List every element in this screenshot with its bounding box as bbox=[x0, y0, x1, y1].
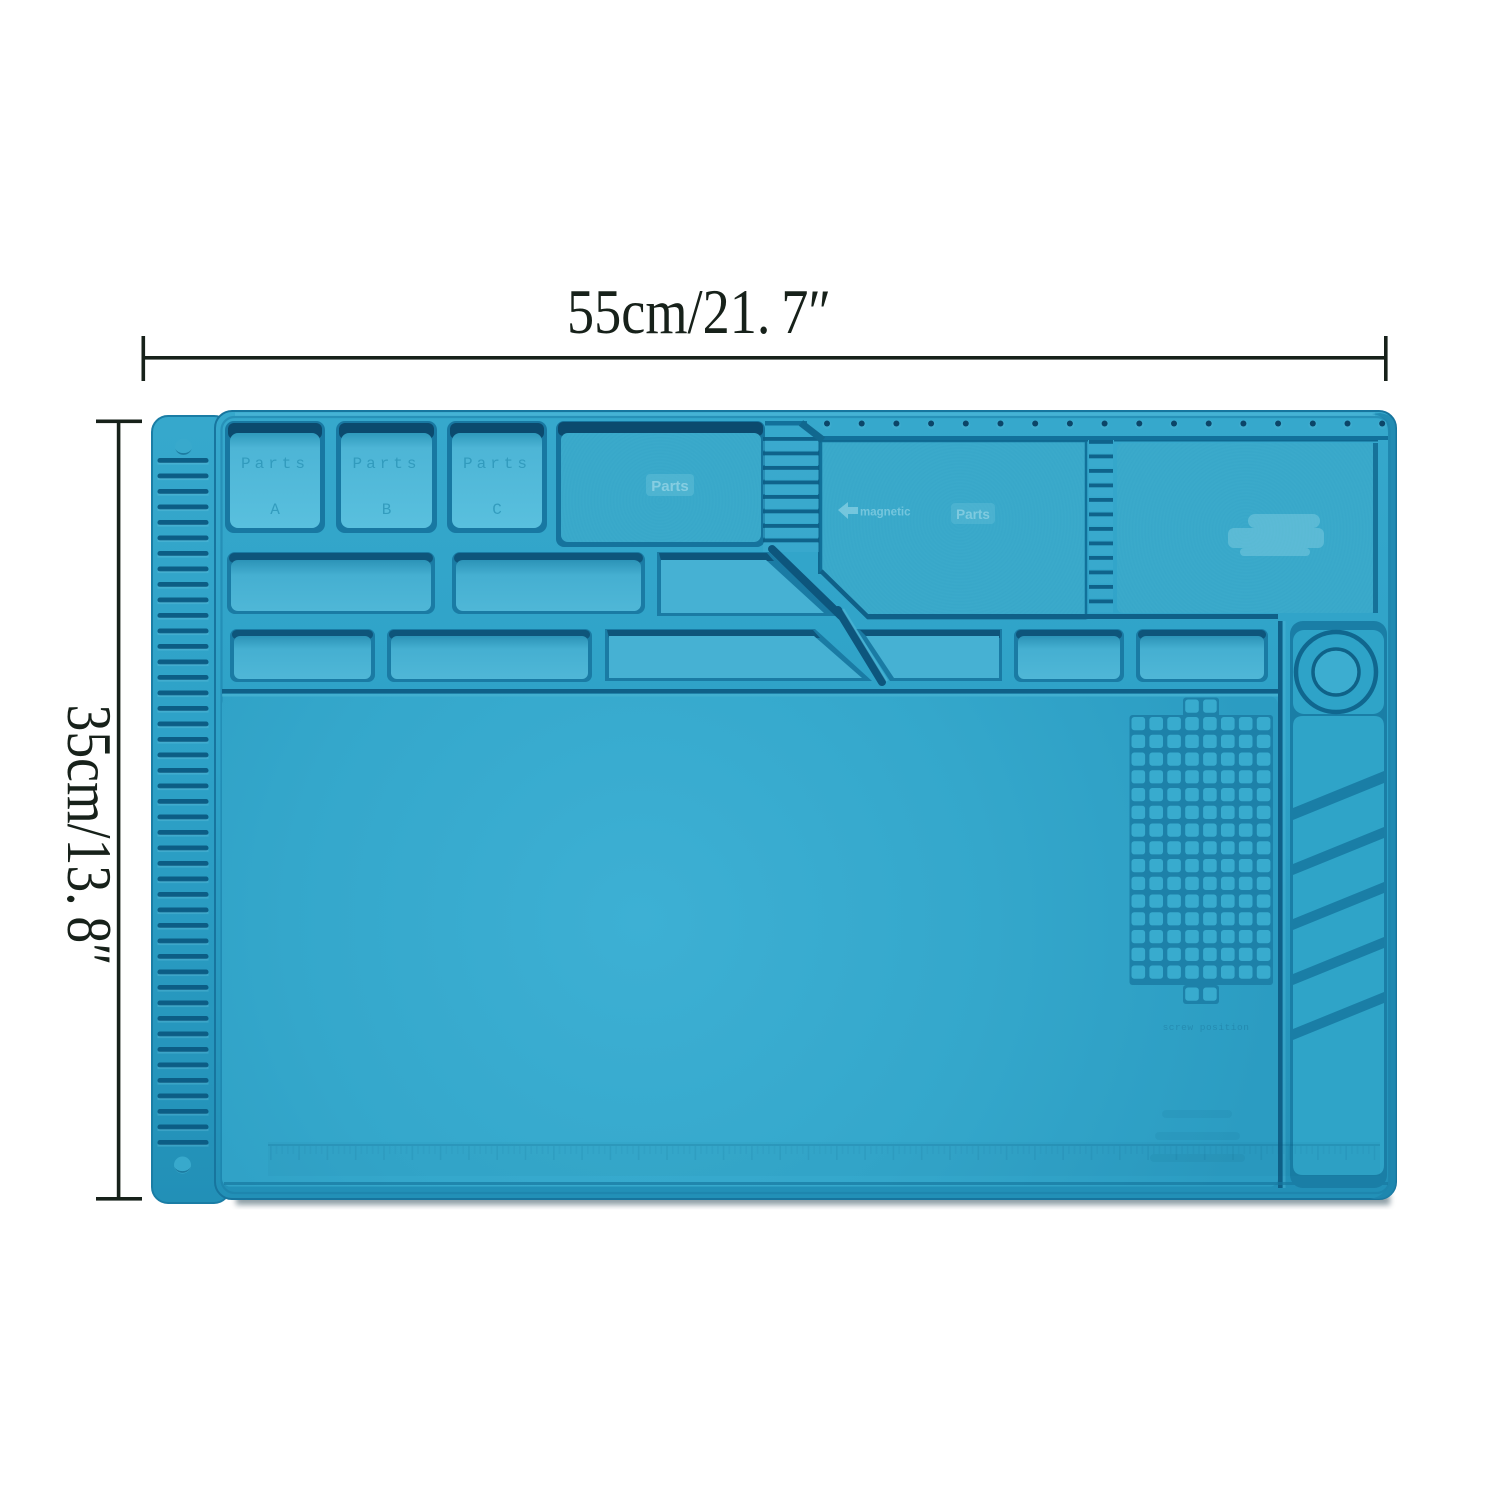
svg-text:Parts: Parts bbox=[956, 507, 990, 522]
svg-text:Parts: Parts bbox=[651, 478, 689, 495]
svg-text:35cm/13. 8″: 35cm/13. 8″ bbox=[54, 705, 125, 966]
svg-text:Parts: Parts bbox=[352, 455, 420, 473]
svg-text:B: B bbox=[382, 501, 392, 519]
svg-text:Parts: Parts bbox=[241, 455, 309, 473]
svg-text:C: C bbox=[492, 501, 502, 519]
svg-text:A: A bbox=[270, 501, 280, 519]
svg-text:magnetic: magnetic bbox=[860, 507, 911, 519]
svg-text:55cm/21. 7″: 55cm/21. 7″ bbox=[567, 276, 831, 347]
svg-text:screw position: screw position bbox=[1163, 1022, 1250, 1033]
svg-text:Parts: Parts bbox=[463, 455, 531, 473]
